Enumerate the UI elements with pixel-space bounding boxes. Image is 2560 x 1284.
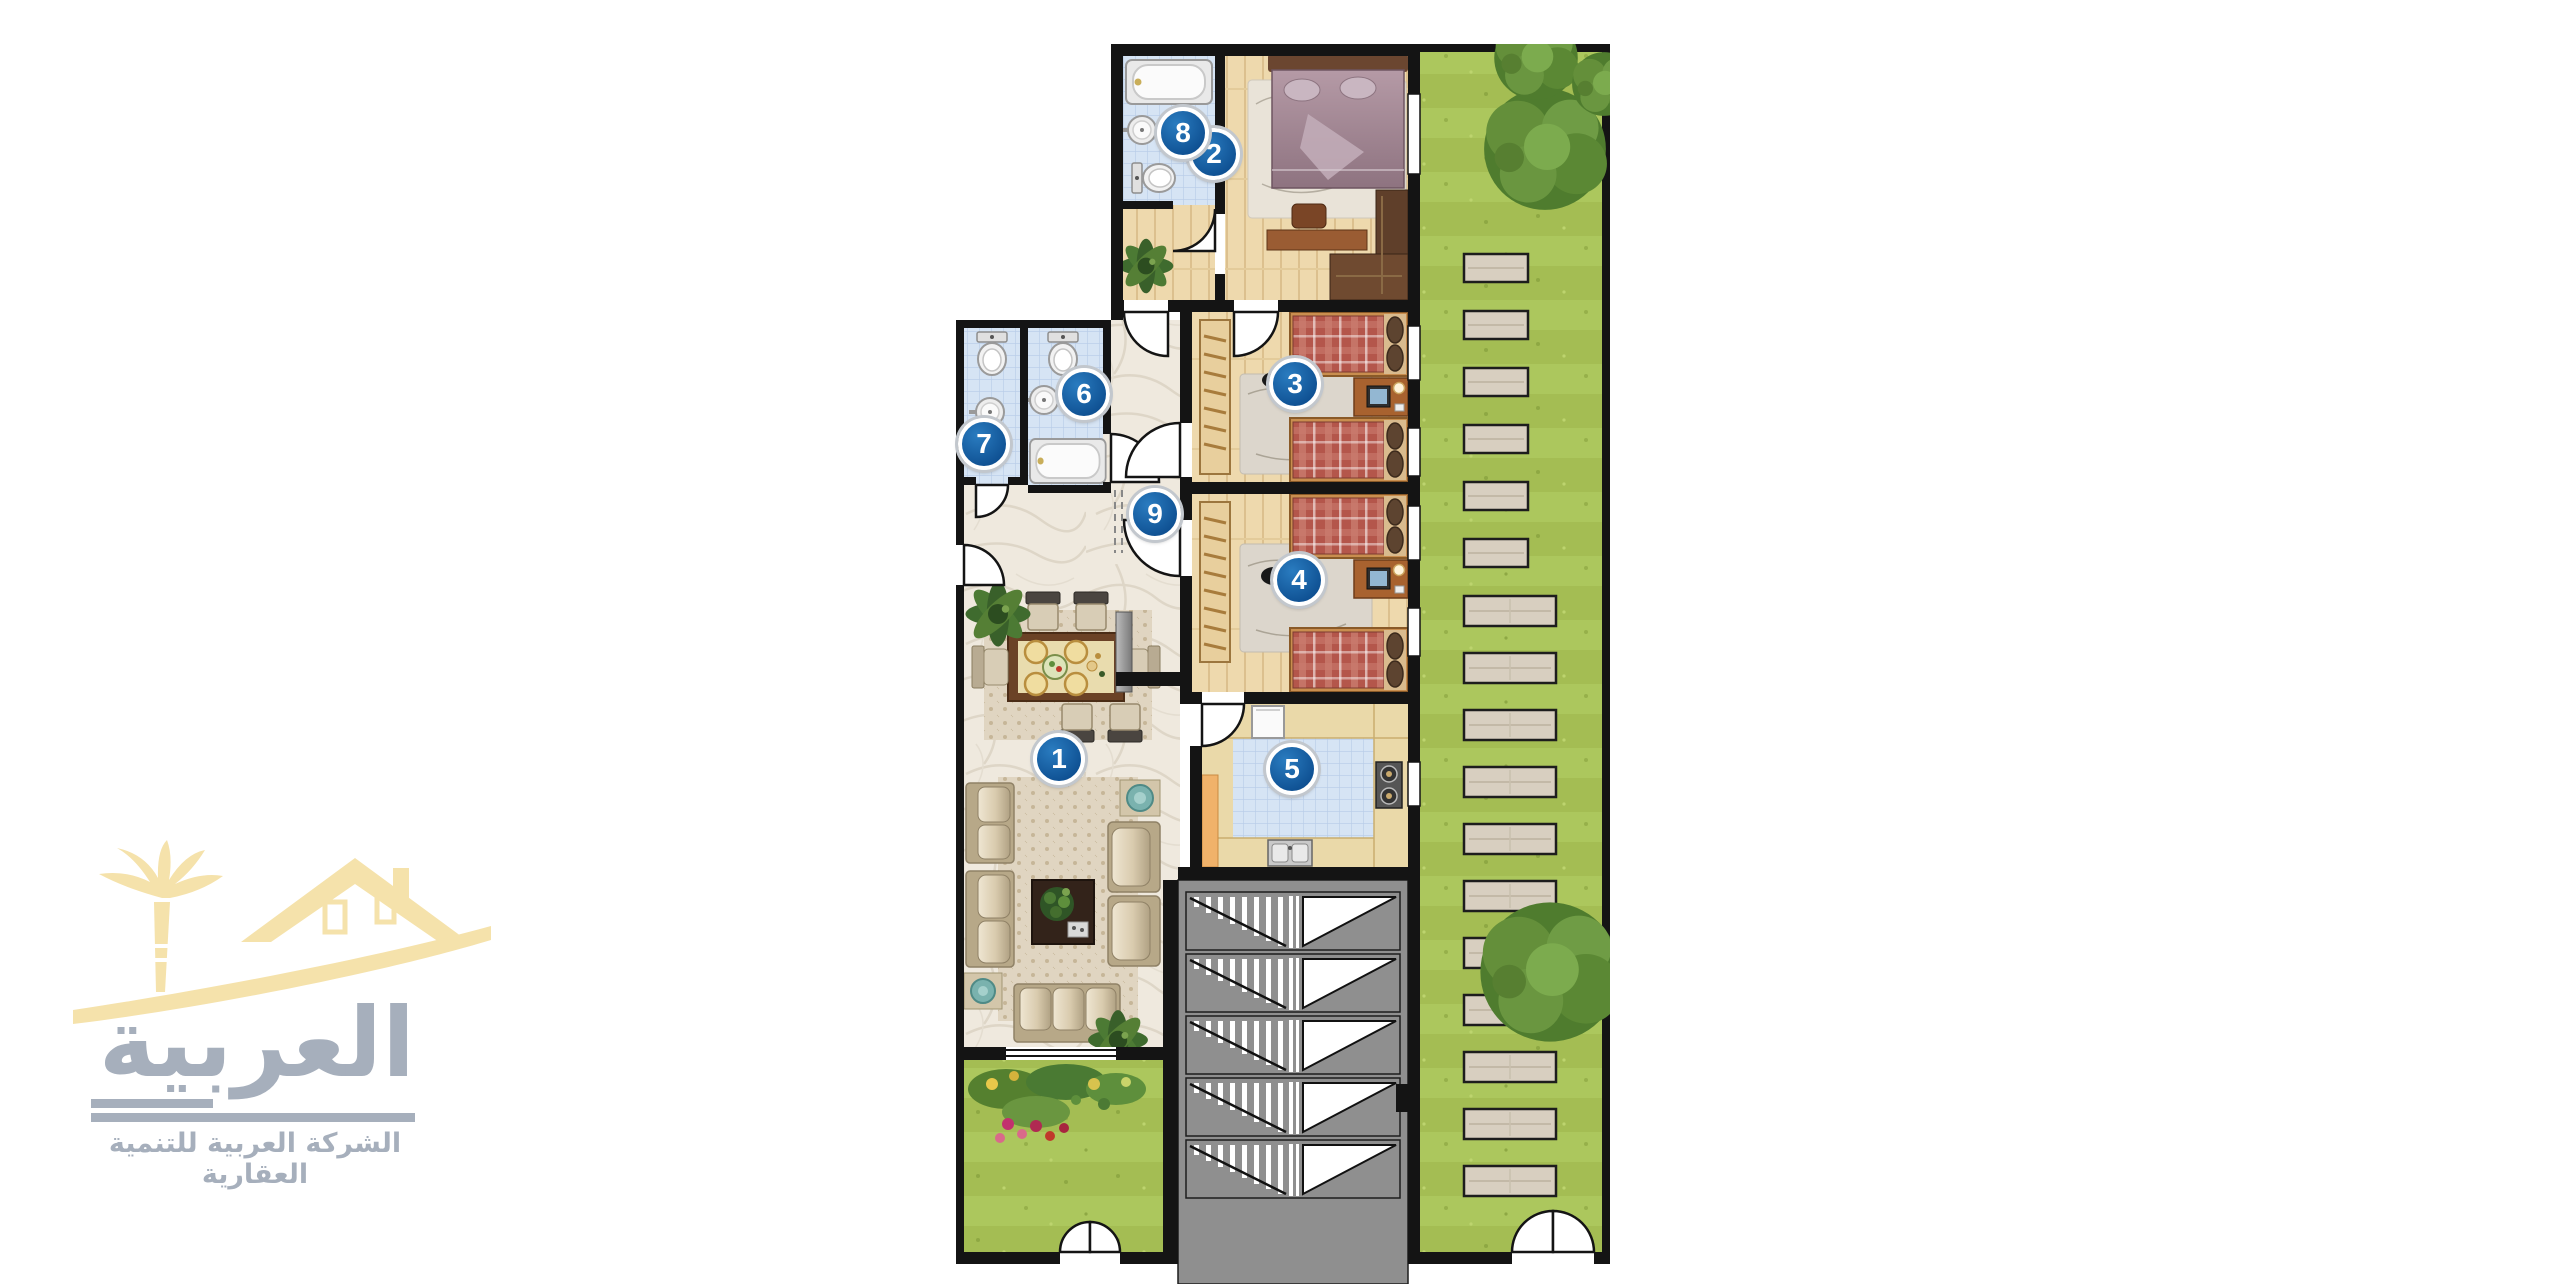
- side-table-icon: [964, 973, 1002, 1009]
- room-badge-3: 3: [1269, 358, 1321, 410]
- logo-underline-bar: [91, 1113, 415, 1122]
- dining-table-icon: [1008, 633, 1124, 701]
- refrigerator-icon: [1252, 706, 1284, 738]
- armchair-icon: [1108, 896, 1160, 966]
- side-garden: [1420, 52, 1602, 1252]
- kitchen-sink-icon: [1268, 840, 1312, 866]
- back-garden: [964, 1060, 1178, 1252]
- side-table-icon: [1120, 780, 1160, 816]
- desk-computer-icon: [1354, 378, 1408, 416]
- dining-chair-icon: [1108, 704, 1142, 742]
- house-roof-icon: [241, 858, 469, 942]
- sofa-icon: [966, 871, 1014, 967]
- coffee-table-icon: [1032, 880, 1094, 944]
- room-badge-5: 5: [1266, 743, 1318, 795]
- plant-icon: [966, 582, 1031, 647]
- logo-brand-text: العربية: [125, 988, 415, 1103]
- room-badge-1: 1: [1033, 733, 1085, 785]
- room-badge-4: 4: [1273, 554, 1325, 606]
- wardrobe-icon: [1200, 320, 1230, 474]
- room-badge-8: 8: [1157, 107, 1209, 159]
- bathtub-icon: [1126, 60, 1212, 104]
- company-logo: العربية الشركة العربية للتنمية العقارية: [55, 840, 515, 1250]
- wardrobe-icon: [1200, 502, 1230, 662]
- master-bedroom: [1225, 54, 1408, 300]
- twin-bed-icon: [1290, 418, 1408, 482]
- room-badge-6: 6: [1058, 368, 1110, 420]
- bathtub-icon: [1030, 439, 1106, 483]
- staircase: [1178, 880, 1408, 1284]
- room-badge-9: 9: [1129, 488, 1181, 540]
- living-room-window: [1006, 1047, 1116, 1060]
- toilet-icon: [1132, 163, 1175, 193]
- twin-bed-icon: [1290, 628, 1408, 692]
- twin-bed-icon: [1290, 494, 1408, 558]
- vestibule-floor: [1119, 205, 1215, 300]
- room-badge-7: 7: [958, 418, 1010, 470]
- toilet-icon: [977, 332, 1007, 375]
- dining-chair-icon: [972, 646, 1008, 688]
- dining-chair-icon: [1026, 592, 1060, 630]
- logo-tagline-text: الشركة العربية للتنمية العقارية: [85, 1128, 425, 1190]
- stove-icon: [1376, 762, 1402, 808]
- plant-icon: [1119, 239, 1174, 294]
- dining-chair-icon: [1074, 592, 1108, 630]
- floor-plan: 1 2 3 4 5 6 7 8 9: [956, 44, 1610, 1284]
- palm-tree-icon: [99, 840, 223, 992]
- floor-plan-drawing: [956, 44, 1610, 1284]
- desk-computer-icon: [1354, 560, 1408, 598]
- sofa-icon: [966, 783, 1014, 863]
- toilet-icon: [1048, 332, 1078, 375]
- cabinet-icon: [1202, 775, 1218, 867]
- double-bed-icon: [1268, 54, 1408, 188]
- page: { "page": { "background": "#ffffff" }, "…: [0, 0, 2560, 1280]
- armchair-icon: [1108, 822, 1160, 892]
- logo-underline-bar: [91, 1099, 213, 1108]
